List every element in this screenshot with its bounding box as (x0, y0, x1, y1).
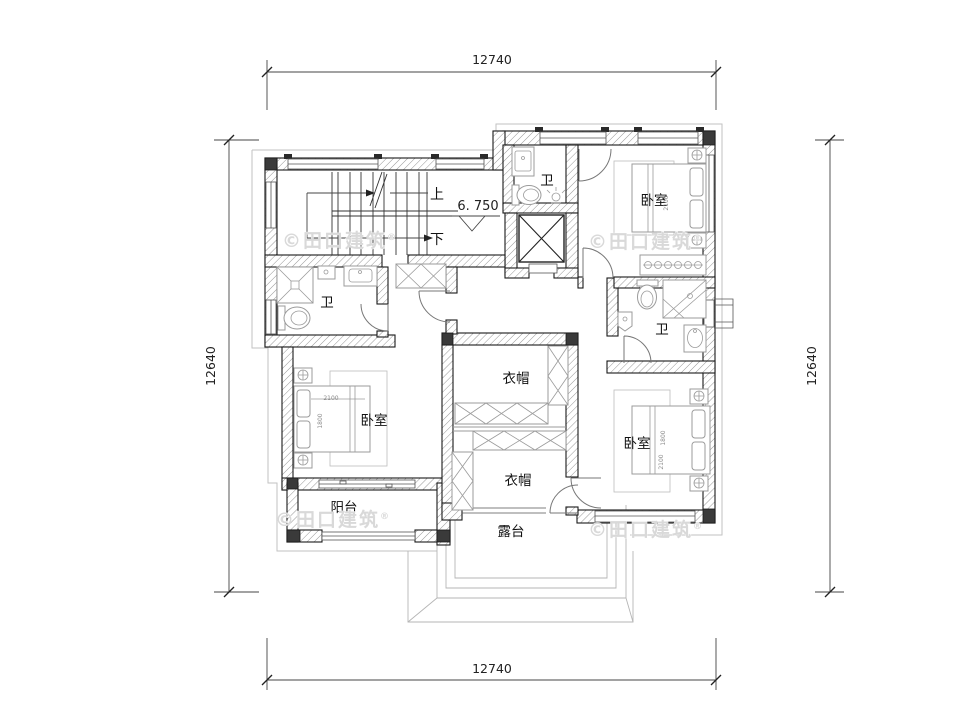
wardrobe-hangers (640, 255, 706, 275)
wardrobe-cloak-upper-right (548, 346, 568, 405)
nightstand (690, 389, 708, 404)
room-label-cloak-lower: 衣帽 (505, 473, 532, 489)
nightstand (294, 368, 312, 383)
watermark-text: ©田口建筑® (275, 508, 391, 531)
dimension-right: 12640 (804, 135, 844, 597)
dimension-top: 12740 (262, 52, 721, 110)
bed-dim-depth: 1800 (660, 430, 667, 445)
door-bath-top (579, 149, 611, 181)
room-label-cloak-upper: 衣帽 (503, 371, 530, 387)
dimension-bottom: 12740 (262, 638, 721, 690)
window-bedroom-top-right-top (638, 132, 698, 144)
fixtures-bath-right (618, 280, 706, 352)
wardrobes (396, 264, 568, 510)
fixtures-bath-top (512, 147, 565, 205)
wall-lamp-icon (547, 187, 565, 203)
bed-dim-width: 2100 (658, 454, 665, 469)
wardrobe-cloak-upper-bottom (455, 403, 548, 424)
window-stair-top (288, 159, 378, 169)
window-bath-left (266, 300, 276, 334)
elevation-marker: 6. 750 (452, 199, 500, 231)
nightstand (294, 453, 312, 468)
floor-plan-drawing: 12740 12740 12640 12640 上 (0, 0, 961, 722)
bay-window-bath-right (704, 299, 733, 328)
watermark-brand: ©田口建筑 (282, 229, 387, 252)
watermark-brand: ©田口建筑 (275, 508, 380, 531)
registered-mark-icon: ® (693, 234, 704, 244)
balcony-sliding-door (319, 480, 415, 488)
door-bath-left (361, 304, 388, 331)
floor-plan-canvas: 12740 12740 12640 12640 上 (0, 0, 961, 722)
stair-up-label: 上 (430, 187, 444, 203)
dimension-top-value: 12740 (472, 52, 512, 67)
elevation-value: 6. 750 (457, 199, 498, 214)
window-bath-top (540, 132, 606, 144)
watermark-text: ©田口建筑® (588, 230, 704, 253)
stair-down-label: 下 (430, 232, 444, 248)
wardrobe-bedroom-left-entry (396, 264, 446, 288)
nightstand (690, 476, 708, 491)
door-cloak-lower (571, 478, 601, 508)
room-label-bath-right: 卫 (655, 322, 669, 338)
terrace-railing (462, 508, 546, 513)
room-label-bedroom-left: 卧室 (361, 412, 388, 429)
nightstand (688, 148, 706, 163)
room-label-bath-top: 卫 (540, 173, 554, 189)
wardrobe-cloak-lower-top (473, 431, 566, 450)
dimension-right-value: 12640 (804, 346, 819, 386)
bed-dim-width: 2100 (663, 195, 670, 210)
bed-dim-depth: 1800 (317, 413, 324, 428)
room-label-terrace: 露台 (498, 524, 525, 540)
watermark-text: ©田口建筑® (282, 229, 398, 252)
bed-dim-width: 2100 (323, 395, 338, 402)
door-bath-right (624, 336, 651, 363)
watermarks: ©田口建筑® ©田口建筑® ©田口建筑® ©田口建筑® (275, 229, 704, 541)
room-label-bedroom-right: 卧室 (624, 435, 651, 452)
watermark-brand: ©田口建筑 (588, 518, 693, 541)
furniture-bedroom-top-right (614, 148, 706, 275)
window-corridor-top (436, 159, 484, 169)
wardrobe-cloak-lower-left (452, 452, 473, 510)
dimension-bottom-value: 12740 (472, 661, 512, 676)
room-label-bath-left: 卫 (320, 295, 334, 311)
stair-annotations: 上 下 6. 750 (430, 187, 500, 248)
watermark-brand: ©田口建筑 (588, 230, 693, 253)
window-stair-left (266, 182, 276, 228)
door-bedroom-left (419, 291, 450, 322)
balcony-railing (322, 532, 415, 540)
dimension-left-value: 12640 (203, 346, 218, 386)
elevator (519, 215, 564, 273)
registered-mark-icon: ® (693, 522, 704, 532)
registered-mark-icon: ® (380, 512, 391, 522)
dimension-left: 12640 (203, 135, 259, 597)
registered-mark-icon: ® (387, 233, 398, 243)
watermark-text: ©田口建筑® (588, 518, 704, 541)
